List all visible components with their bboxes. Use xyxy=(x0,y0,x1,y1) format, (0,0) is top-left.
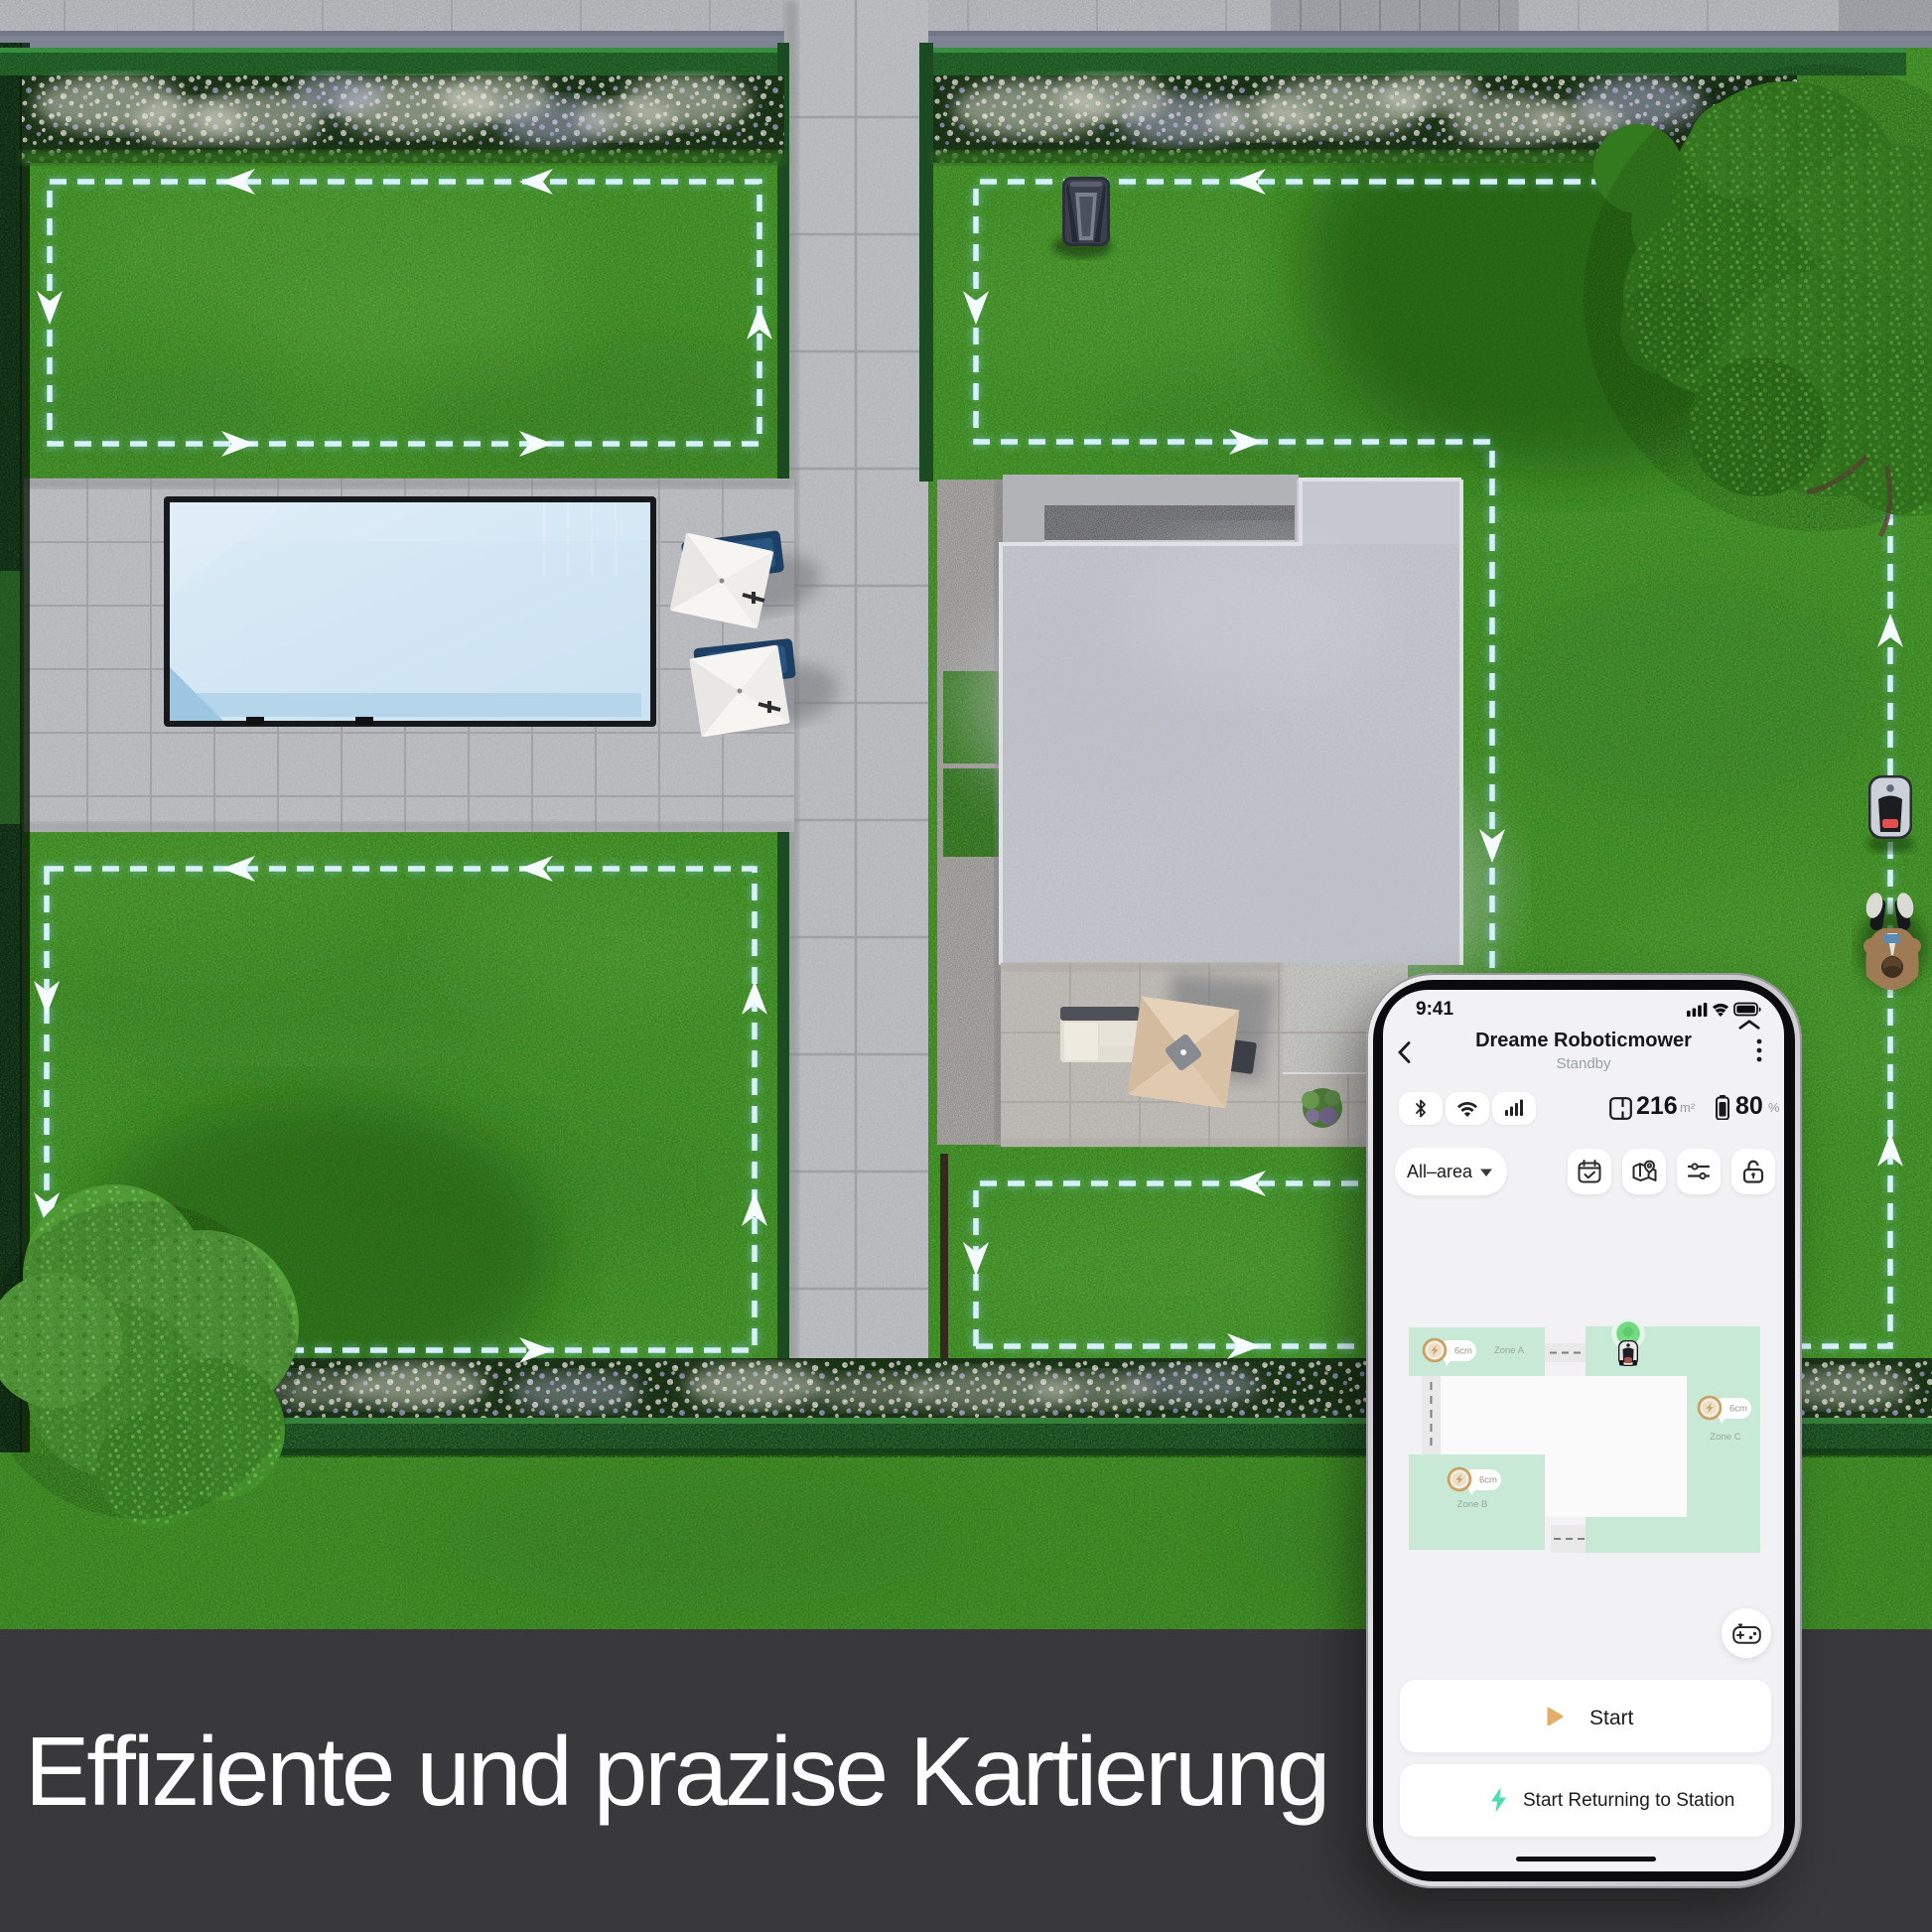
svg-text:6cm: 6cm xyxy=(1729,1404,1747,1415)
svg-text:Zone A: Zone A xyxy=(1494,1345,1525,1356)
svg-text:6cm: 6cm xyxy=(1454,1346,1472,1357)
svg-text:Zone B: Zone B xyxy=(1457,1499,1488,1510)
svg-text:6cm: 6cm xyxy=(1479,1475,1497,1486)
svg-text:Zone C: Zone C xyxy=(1710,1432,1740,1443)
